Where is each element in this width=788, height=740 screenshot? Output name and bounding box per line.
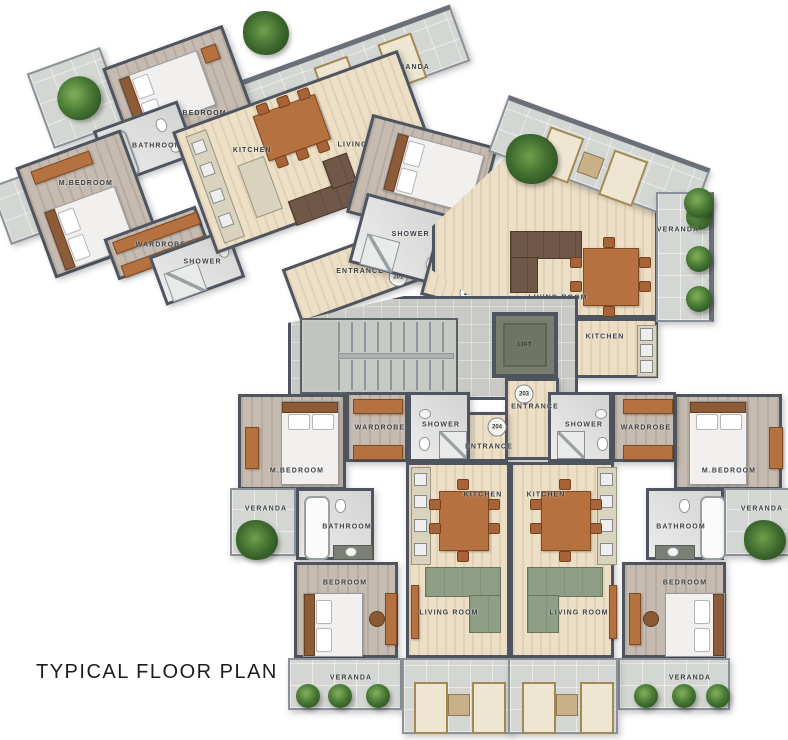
floor-plan: VERANDA BEDROOM BATHROOM M.BEDROOM WARDR… (0, 0, 788, 740)
sofa (510, 257, 538, 293)
palm-plant (236, 520, 278, 560)
chair (530, 499, 542, 510)
sink-appliance (640, 328, 653, 341)
room-veranda-203-side: VERANDA (724, 488, 788, 556)
room-label-shower-202: SHOWER (392, 231, 430, 238)
room-veranda-204-bottom: VERANDA (288, 658, 402, 710)
room-veranda-203-bottom2 (508, 658, 618, 734)
room-wardrobe-204: WARDROBE (346, 392, 408, 462)
chair (457, 551, 469, 562)
palm-plant (243, 11, 289, 55)
room-label-bedroom-204: BEDROOM (323, 580, 367, 587)
plant (706, 684, 730, 708)
plant (686, 246, 712, 272)
room-veranda-204-side: VERANDA (230, 488, 296, 556)
room-bedroom-204: BEDROOM (294, 562, 398, 658)
headboard (690, 402, 746, 413)
room-label-wardrobe-204: WARDROBE (355, 425, 405, 432)
toilet (597, 437, 608, 451)
pillow (288, 414, 310, 430)
chair (457, 479, 469, 490)
toilet (154, 117, 169, 134)
chair (570, 281, 582, 292)
room-mbedroom-204: M.BEDROOM (238, 394, 346, 490)
lift-label: LIFT (518, 342, 533, 348)
chair (590, 499, 602, 510)
plant (366, 684, 390, 708)
chair (590, 523, 602, 534)
oven (414, 519, 427, 532)
dining-table (541, 491, 591, 551)
side-table (448, 694, 470, 716)
oven (640, 360, 653, 373)
chair (429, 523, 441, 534)
chair (559, 551, 571, 562)
shower-stall (439, 431, 467, 459)
chair (274, 154, 289, 168)
lounger (522, 682, 556, 734)
chair (603, 306, 615, 317)
lounger (472, 682, 506, 734)
room-label-living-203: LIVING ROOM (549, 610, 608, 617)
pillow (316, 600, 332, 624)
plant (686, 286, 712, 312)
bed (665, 593, 725, 657)
palm-plant (506, 134, 558, 184)
sink (667, 547, 679, 557)
room-label-entrance-204: ENTRANCE (465, 444, 513, 451)
shower-stall (557, 431, 585, 459)
tv-unit (609, 585, 617, 639)
chair (488, 499, 500, 510)
room-label-veranda-203side: VERANDA (741, 506, 783, 513)
side-table (577, 151, 605, 179)
chair (639, 281, 651, 292)
tv-unit (411, 585, 419, 639)
room-label-mbedroom-203: M.BEDROOM (702, 468, 756, 475)
closet (353, 445, 403, 460)
shower-stall (163, 262, 207, 303)
room-label-wardrobe-203: WARDROBE (621, 425, 671, 432)
room-label-living-204: LIVING ROOM (419, 610, 478, 617)
pillow (316, 628, 332, 652)
headboard (304, 594, 315, 656)
shower-stall (359, 233, 400, 273)
room-label-bedroom-203: BEDROOM (663, 580, 707, 587)
sink (419, 409, 431, 419)
chair (295, 147, 310, 161)
plant (51, 70, 107, 126)
dresser (245, 427, 259, 469)
room-label-mbedroom-204: M.BEDROOM (270, 468, 324, 475)
dining-table (583, 248, 639, 306)
toilet (335, 499, 346, 513)
plant (684, 188, 714, 218)
chair (570, 257, 582, 268)
plant (328, 684, 352, 708)
unit-badge-204: 204 (488, 418, 507, 437)
room-shower-204: SHOWER (408, 392, 470, 462)
room-kitchen-living-204: KITCHEN LIVING ROOM (406, 462, 510, 658)
room-veranda-204-bottom2 (402, 658, 512, 734)
side-table (556, 694, 578, 716)
stool (643, 611, 659, 627)
sink-appliance (414, 473, 427, 486)
toilet (679, 499, 690, 513)
palm-plant (744, 520, 786, 560)
closet (623, 399, 673, 414)
room-label-shower-204: SHOWER (422, 422, 460, 429)
pillow (694, 600, 710, 624)
pillow (696, 414, 718, 430)
room-label-bathroom-201: BATHROOM (132, 143, 182, 150)
chair (429, 499, 441, 510)
chair (603, 237, 615, 248)
stair-landing (304, 322, 339, 390)
room-label-kitchen-203: KITCHEN (527, 492, 566, 499)
sofa (527, 567, 603, 597)
room-label-shower-203: SHOWER (565, 422, 603, 429)
sink-appliance (600, 473, 613, 486)
room-label-entrance-203: ENTRANCE (511, 404, 559, 411)
pillow (720, 414, 742, 430)
lounger (414, 682, 448, 734)
toilet (419, 437, 430, 451)
page-title: TYPICAL FLOOR PLAN (36, 661, 278, 684)
room-label-veranda-204: VERANDA (330, 675, 372, 682)
room-label-veranda-202: VERANDA (657, 227, 699, 234)
plant (296, 684, 320, 708)
room-kitchen-living-203: KITCHEN LIVING ROOM (510, 462, 614, 658)
dining-table (439, 491, 489, 551)
pillow (312, 414, 334, 430)
nightstand (200, 43, 221, 64)
room-shower-203: SHOWER (548, 392, 612, 462)
room-bathroom-203: BATHROOM (646, 488, 724, 560)
stair-flight-down (338, 360, 454, 390)
chair (316, 139, 331, 153)
fridge (600, 543, 613, 556)
stove (414, 495, 427, 508)
sofa (510, 231, 582, 259)
room-label-kitchen-204: KITCHEN (464, 492, 503, 499)
room-bedroom-203: BEDROOM (622, 562, 726, 658)
room-label-kitchen-202: KITCHEN (586, 334, 625, 341)
headboard (282, 402, 338, 413)
room-label-shower-201: SHOWER (183, 258, 221, 265)
chair (530, 523, 542, 534)
plant (634, 684, 658, 708)
sink (345, 547, 357, 557)
room-bathroom-204: BATHROOM (296, 488, 374, 560)
dresser (769, 427, 783, 469)
unit-badge-203: 203 (515, 385, 534, 404)
sink (595, 409, 607, 419)
room-wardrobe-203: WARDROBE (612, 392, 676, 462)
room-mbedroom-203: M.BEDROOM (674, 394, 782, 490)
staircase (300, 318, 458, 394)
fridge (414, 543, 427, 556)
chair (559, 479, 571, 490)
lift: LIFT (492, 312, 558, 378)
room-label-mbedroom-201: M.BEDROOM (59, 180, 113, 187)
closet (353, 399, 403, 414)
room-label-bathroom-204: BATHROOM (322, 524, 372, 531)
stool (369, 611, 385, 627)
dresser (629, 593, 641, 645)
room-label-kitchen-201: KITCHEN (233, 147, 272, 154)
closet (623, 445, 673, 460)
bed (303, 593, 363, 657)
stove (640, 344, 653, 357)
chair (488, 523, 500, 534)
stair-divider (338, 353, 454, 359)
stair-flight-up (338, 322, 454, 352)
chair (639, 257, 651, 268)
room-veranda-203-bottom: VERANDA (618, 658, 730, 710)
lounger (580, 682, 614, 734)
dresser (385, 593, 397, 645)
room-label-veranda-204side: VERANDA (245, 506, 287, 513)
headboard (713, 594, 724, 656)
plant (672, 684, 696, 708)
pillow (694, 628, 710, 652)
sofa (425, 567, 501, 597)
room-label-bathroom-203: BATHROOM (656, 524, 706, 531)
room-label-veranda-203: VERANDA (669, 675, 711, 682)
